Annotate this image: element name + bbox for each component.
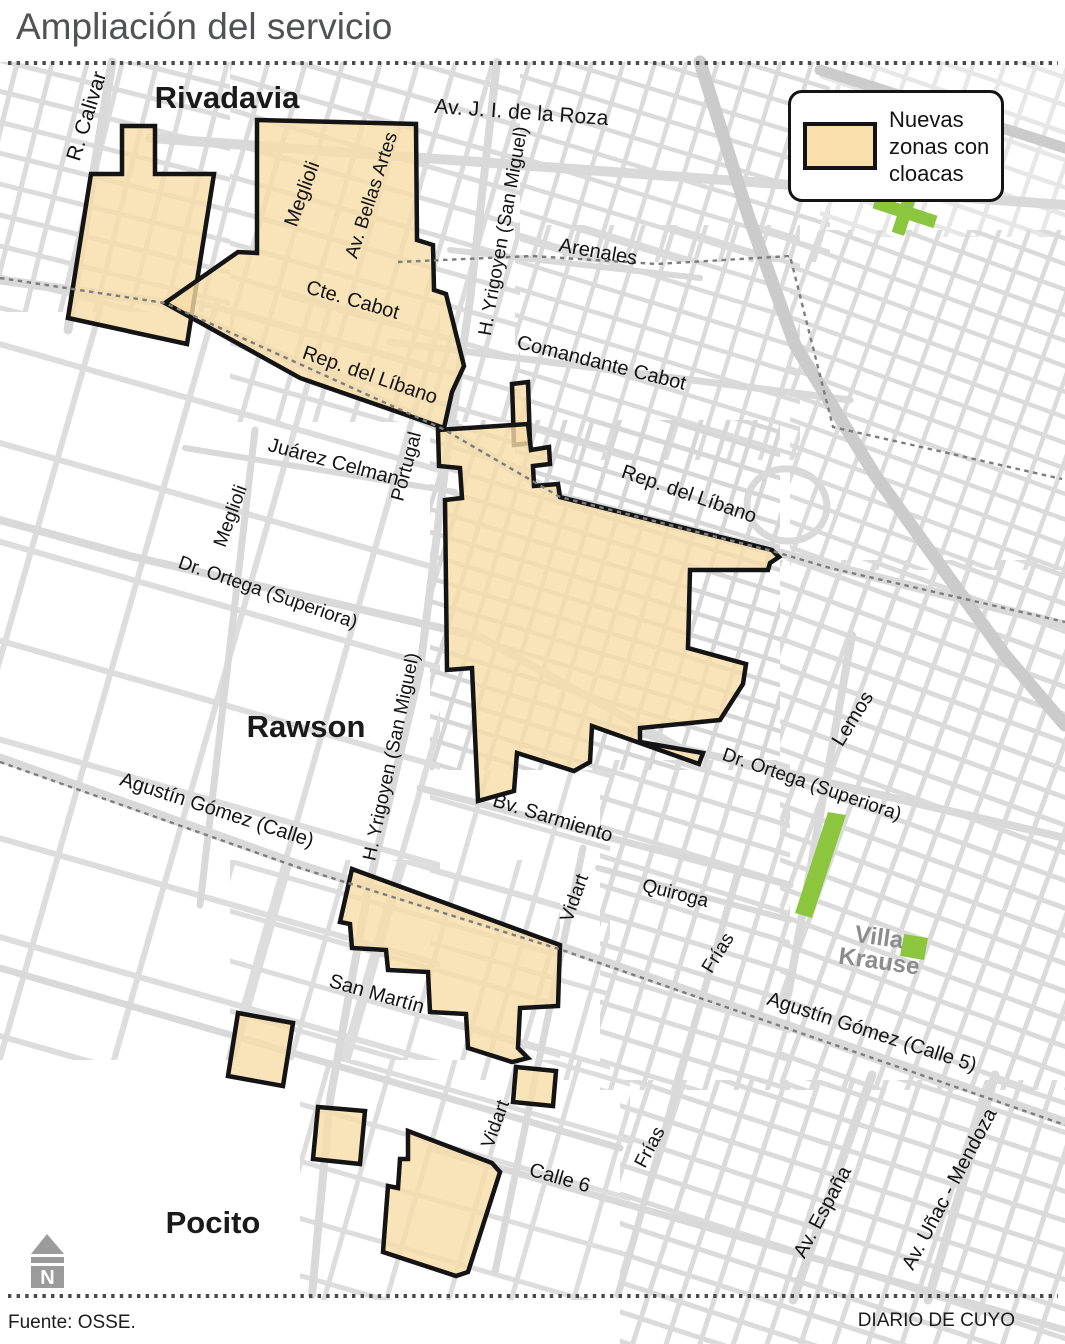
svg-text:N: N (40, 1267, 54, 1289)
publisher-credit: DIARIO DE CUYO (858, 1310, 1015, 1332)
district-label: Rawson (247, 709, 366, 744)
infographic-page: Ampliación del servicio R. CalivarAv. J.… (0, 0, 1065, 1344)
zona-pocito-c (383, 1131, 500, 1276)
street-label: Av. J. I. de la Roza (434, 95, 610, 130)
legend-swatch-nuevas-zonas (803, 122, 877, 170)
district-label: Rivadavia (155, 80, 301, 115)
legend-label: Nuevas zonas con cloacas (889, 106, 989, 187)
map-legend: Nuevas zonas con cloacas (788, 90, 1004, 202)
legend-line-2: zonas con (889, 133, 989, 160)
street-label: Calle 6 (527, 1159, 593, 1197)
zona-pocito-a (228, 1013, 293, 1086)
district-label: Pocito (166, 1205, 261, 1240)
source-credit: Fuente: OSSE. (8, 1312, 136, 1334)
street-label: San Martín (327, 970, 427, 1018)
zona-vidart-chica (513, 1067, 556, 1106)
legend-line-1: Nuevas (889, 106, 989, 133)
north-compass-icon: N (31, 1234, 64, 1289)
legend-line-3: cloacas (889, 160, 989, 187)
zona-pocito-b (313, 1107, 365, 1164)
